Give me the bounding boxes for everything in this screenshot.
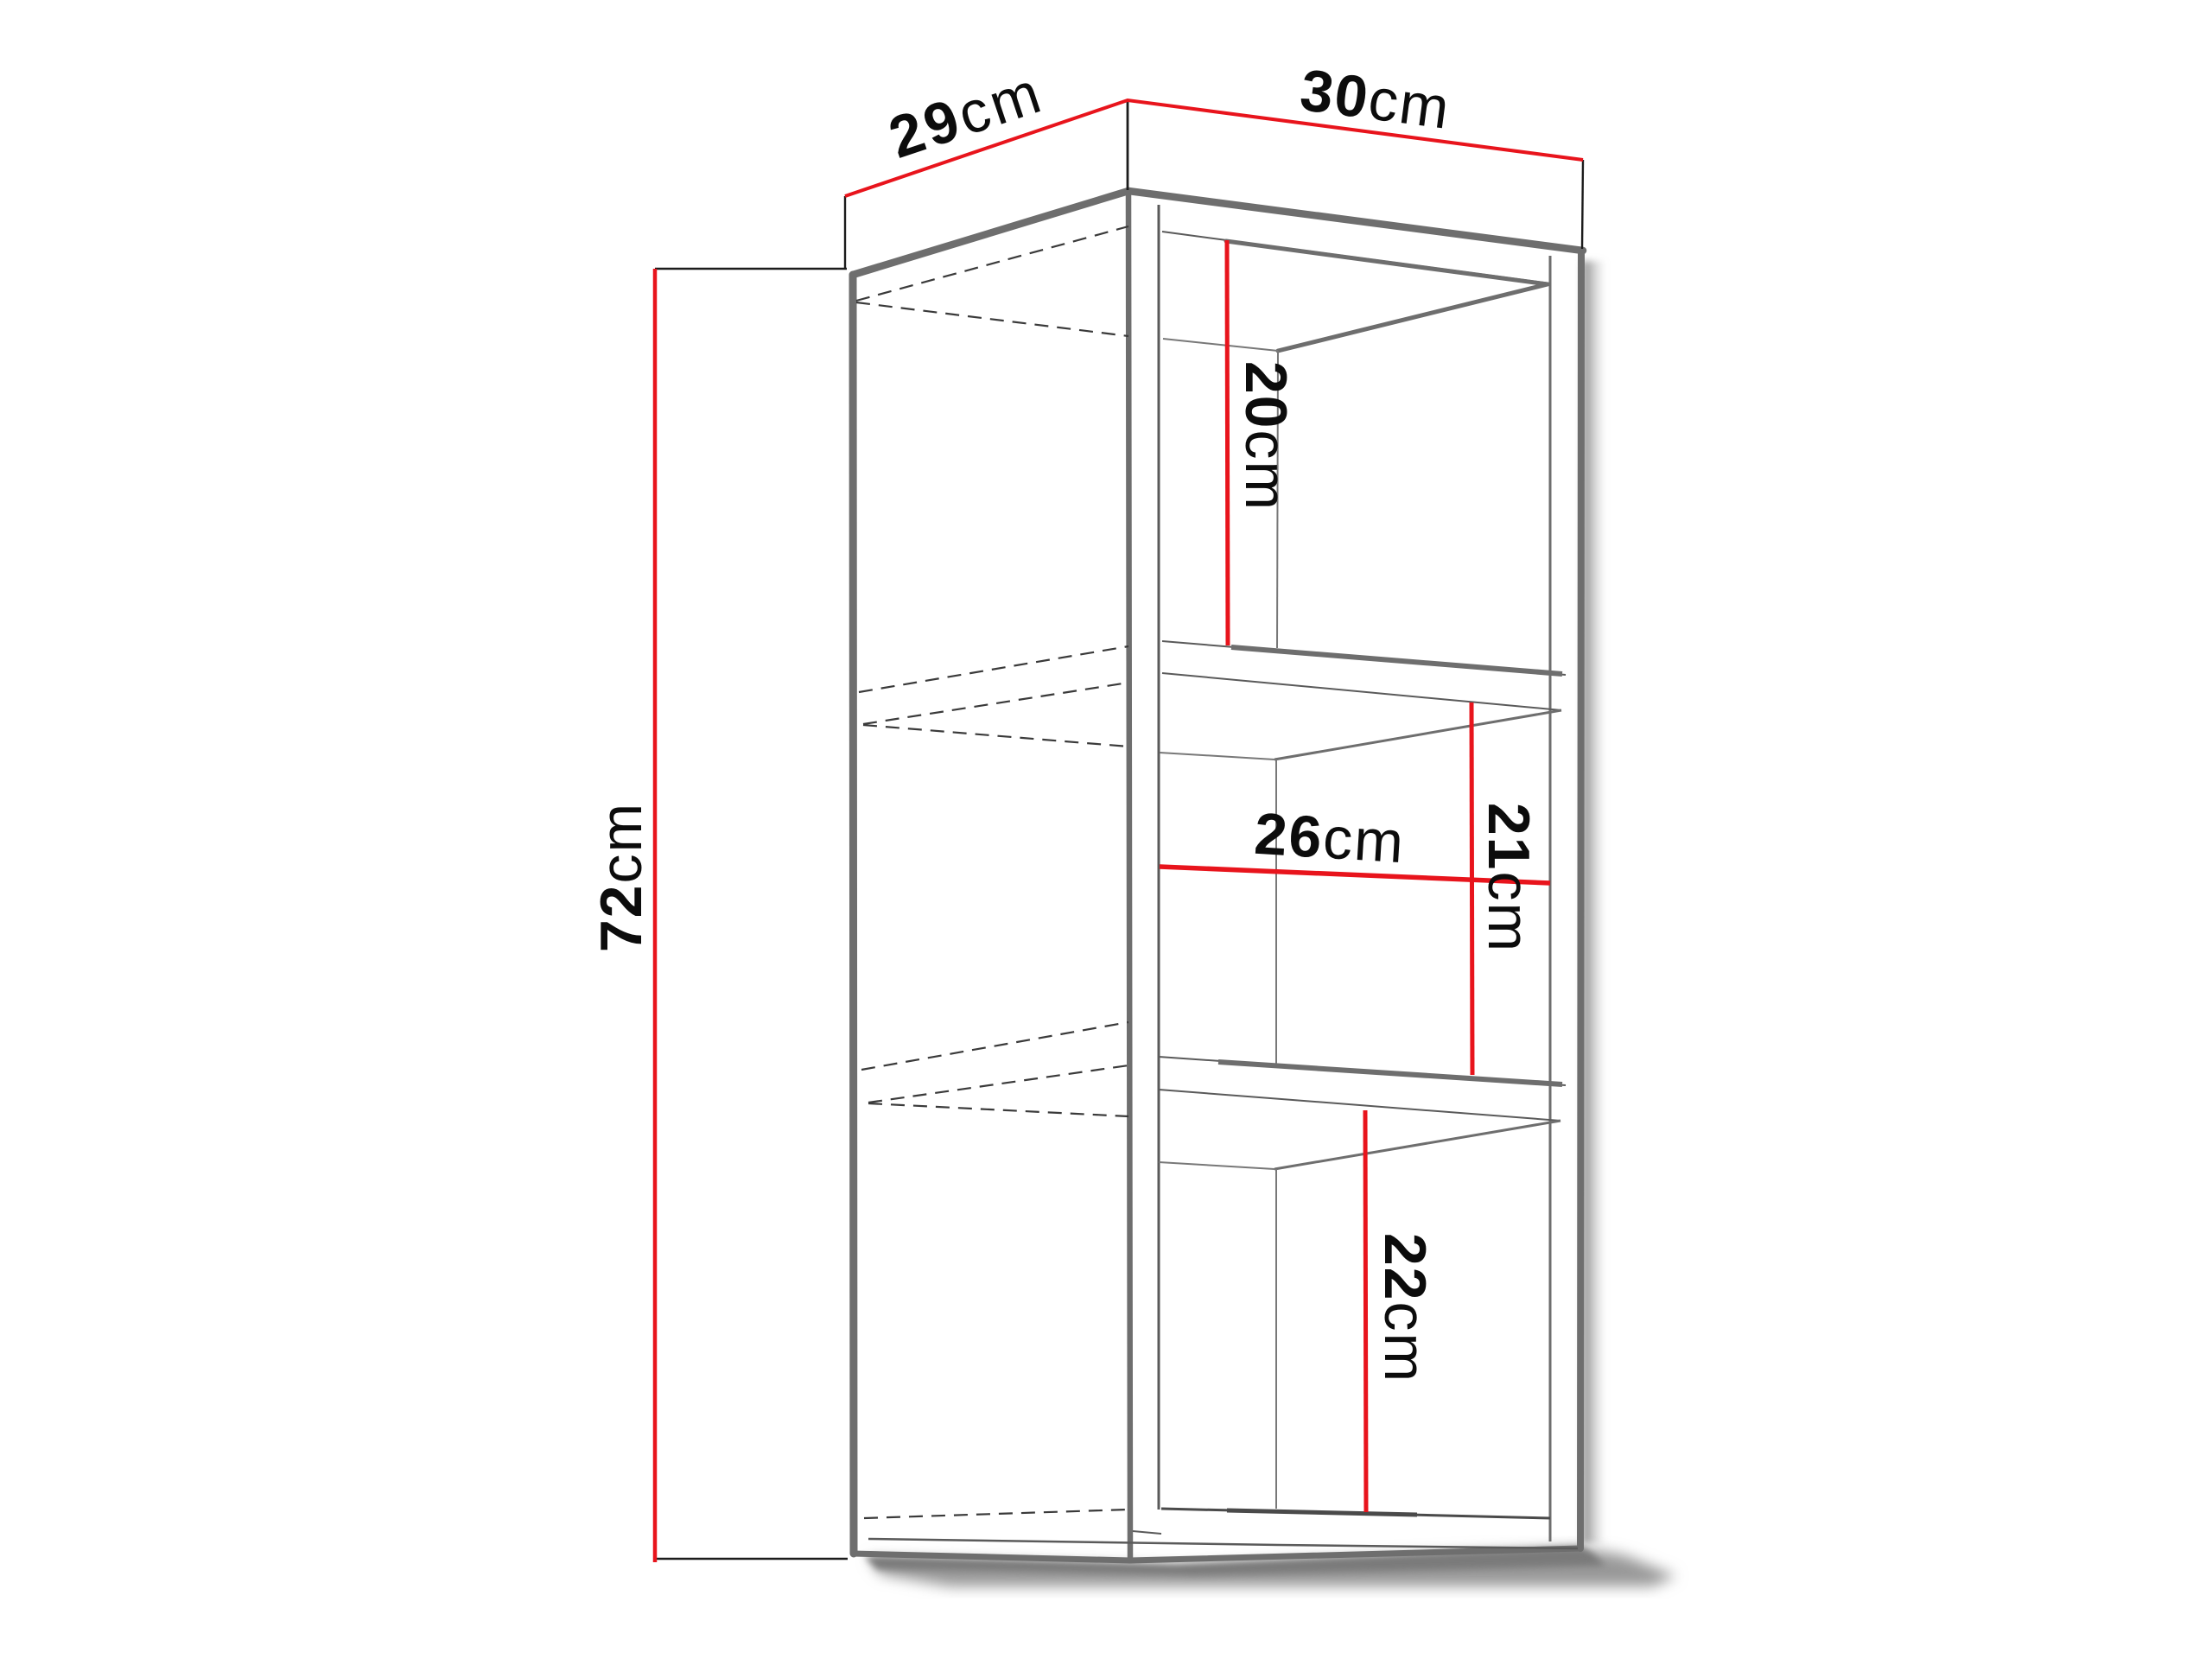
svg-text:26cm: 26cm [1253,801,1408,875]
svg-text:21cm: 21cm [1476,803,1541,953]
svg-text:22cm: 22cm [1372,1233,1438,1383]
svg-text:20cm: 20cm [1233,361,1299,512]
svg-text:72cm: 72cm [588,802,654,952]
